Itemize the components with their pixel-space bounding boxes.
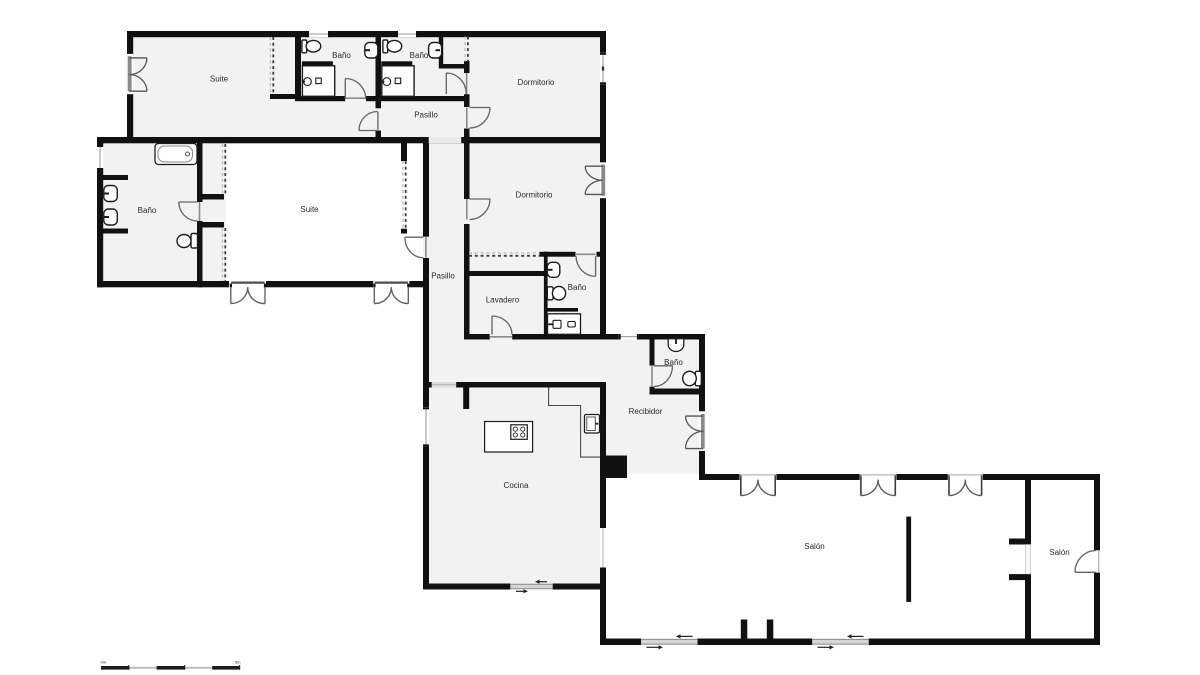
svg-text:Baño: Baño xyxy=(138,206,157,215)
svg-text:Suite: Suite xyxy=(300,205,319,214)
svg-text:Dormitorio: Dormitorio xyxy=(518,78,555,87)
svg-text:Salón: Salón xyxy=(804,542,824,551)
svg-text:Lavadero: Lavadero xyxy=(486,296,520,305)
svg-text:Suite: Suite xyxy=(210,75,229,84)
svg-text:Dormitorio: Dormitorio xyxy=(516,191,553,200)
svg-text:Salón: Salón xyxy=(1049,548,1069,557)
svg-text:Pasillo: Pasillo xyxy=(431,272,455,281)
svg-text:Recibidor: Recibidor xyxy=(629,407,663,416)
svg-text:Pasillo: Pasillo xyxy=(414,111,438,120)
svg-text:Baño: Baño xyxy=(410,51,429,60)
svg-text:0m: 0m xyxy=(101,660,107,665)
svg-text:Baño: Baño xyxy=(332,51,351,60)
svg-text:Baño: Baño xyxy=(664,358,683,367)
svg-text:Cocina: Cocina xyxy=(504,481,529,490)
svg-text:5m: 5m xyxy=(235,660,241,665)
svg-text:Baño: Baño xyxy=(568,283,587,292)
